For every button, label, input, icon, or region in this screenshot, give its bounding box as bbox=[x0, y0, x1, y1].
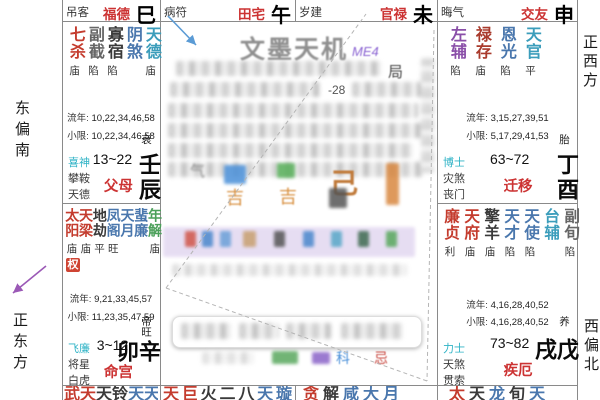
star-name: 阴煞 bbox=[123, 26, 140, 60]
star-list: 太阳 庙 天梁 庙 地劫 平 凤阁 旺 天月 蜚廉 bbox=[65, 208, 162, 253]
star-list: 七杀 庙 副截 陷 寡宿 陷 阴煞 天德 庙 bbox=[65, 26, 160, 75]
palace-travel[interactable]: 左辅 陷 禄存 庙 恩光 陷 天官 平 流年: 3,15,27,39,51 小限… bbox=[437, 22, 578, 204]
star-column: 副截 陷 bbox=[84, 26, 103, 75]
hua-ke-mark: 科 bbox=[336, 348, 350, 368]
star-char: 太 bbox=[449, 386, 465, 400]
palace-header-cell[interactable]: 岁建 官禄 未 bbox=[295, 0, 437, 21]
star-brightness: 庙 bbox=[80, 241, 91, 253]
star-brightness: 庙 bbox=[145, 63, 156, 75]
year-god-label: 晦气 bbox=[441, 4, 464, 20]
star-name: 天梁 bbox=[78, 208, 93, 238]
xiaoxian-label: 小限: bbox=[466, 317, 488, 328]
toolbar-button-blurred[interactable] bbox=[239, 323, 279, 339]
liunian-years: 3,15,27,39,51 bbox=[491, 113, 549, 124]
blurred-text-row bbox=[168, 123, 423, 138]
xiaoxian-years: 5,17,29,41,53 bbox=[491, 131, 549, 142]
star-char: 天 bbox=[529, 386, 545, 400]
palace-hai-stars-clipped[interactable]: 太天龙旬天 bbox=[449, 386, 557, 400]
blurred-text-row bbox=[168, 143, 413, 158]
star-char: 巨 bbox=[182, 386, 198, 400]
star-column: 擎羊 庙 bbox=[480, 208, 500, 256]
liunian-label: 流年: bbox=[466, 113, 488, 124]
liunian-years: 10,22,34,46,58 bbox=[91, 113, 154, 124]
compass-due-east: 正东方 bbox=[12, 312, 27, 375]
hua-quan-badge: 权 bbox=[66, 258, 80, 272]
branch-pillar: 壬辰 bbox=[137, 153, 159, 203]
gods-list: 博士灾煞丧门 bbox=[443, 155, 465, 203]
value-fragment: -28 bbox=[328, 83, 345, 97]
star-name: 副截 bbox=[85, 26, 102, 60]
star-column: 阴煞 bbox=[122, 26, 141, 75]
star-brightness: 利 bbox=[445, 244, 456, 256]
palace-name: 交友 bbox=[521, 3, 548, 23]
mini-red-block bbox=[185, 231, 196, 247]
xiaoxian-row: 小限: 5,17,29,41,53 bbox=[437, 128, 578, 142]
life-stage: 养 bbox=[559, 316, 570, 327]
branch-pillar: 戊戌 bbox=[533, 338, 577, 385]
blurred-text-row bbox=[168, 103, 418, 118]
quan-purple-block bbox=[312, 352, 330, 364]
star-char: 天 bbox=[128, 386, 144, 400]
star-char: 二 bbox=[219, 386, 235, 400]
auspicious-mark: 吉 bbox=[226, 184, 244, 210]
star-char: 龙 bbox=[489, 386, 505, 400]
star-char: 璇 bbox=[276, 386, 292, 400]
star-name: 年解 bbox=[147, 208, 162, 238]
star-brightness: 旺 bbox=[108, 241, 119, 253]
star-name: 七杀 bbox=[66, 26, 83, 60]
hua-ji-mark: 忌 bbox=[374, 348, 388, 368]
palace-yin-stars-clipped[interactable]: 武天天铃天天龙 bbox=[64, 386, 158, 400]
god-name: 攀鞍 bbox=[68, 171, 90, 187]
life-stage: 帝旺 bbox=[141, 316, 152, 337]
star-brightness: 陷 bbox=[88, 63, 99, 75]
blurred-text-row bbox=[168, 162, 423, 177]
palace-life[interactable]: 太阳 庙 天梁 庙 地劫 平 凤阁 旺 天月 蜚廉 bbox=[62, 204, 160, 385]
star-column: 左辅 陷 bbox=[443, 26, 468, 75]
star-column: 禄存 庙 bbox=[468, 26, 493, 75]
star-char: 旬 bbox=[509, 386, 525, 400]
star-char: 天 bbox=[96, 386, 112, 400]
mini-dark-block bbox=[274, 231, 285, 247]
star-column: 台辅 bbox=[540, 208, 560, 256]
star-name: 台辅 bbox=[542, 208, 558, 241]
toolbar-button-blurred[interactable] bbox=[286, 323, 331, 339]
star-column: 太阳 庙 bbox=[65, 208, 79, 253]
highlight-band bbox=[163, 227, 415, 257]
star-brightness: 平 bbox=[525, 63, 536, 75]
ziwei-chart: 东偏南 正东方 正西方 西偏北 吊客 福德 巳 病符 田宅 午 岁建 官禄 未 … bbox=[0, 0, 600, 400]
branch-pillar: 丁酉 bbox=[555, 153, 577, 203]
star-name: 天使 bbox=[522, 208, 538, 241]
palace-parents[interactable]: 七杀 庙 副截 陷 寡宿 陷 阴煞 天德 庙 流年: 10,22,34,46,5… bbox=[62, 22, 160, 204]
star-brightness: 陷 bbox=[107, 63, 118, 75]
star-name: 蜚廉 bbox=[134, 208, 149, 238]
star-brightness: 平 bbox=[94, 241, 105, 253]
mini-blue-block bbox=[202, 231, 213, 247]
top-palace-strip: 吊客 福德 巳 病符 田宅 午 岁建 官禄 未 晦气 交友 申 bbox=[62, 0, 578, 21]
star-char: 天 bbox=[80, 386, 96, 400]
palace-header-cell[interactable]: 病符 田宅 午 bbox=[160, 0, 295, 21]
star-char: 解 bbox=[323, 386, 339, 400]
star-column: 天梁 庙 bbox=[79, 208, 93, 253]
star-column: 天府 庙 bbox=[460, 208, 480, 256]
palace-name: 福德 bbox=[103, 3, 130, 23]
star-name: 天官 bbox=[522, 26, 539, 60]
palace-header-cell[interactable]: 吊客 福德 巳 bbox=[62, 0, 160, 21]
palace-name: 田宅 bbox=[238, 3, 265, 23]
blurred-text-row bbox=[172, 264, 407, 276]
earthly-branch: 未 bbox=[413, 0, 433, 28]
star-char: 铃 bbox=[112, 386, 128, 400]
star-name: 凤阁 bbox=[106, 208, 121, 238]
year-god-label: 吊客 bbox=[66, 4, 89, 20]
star-column: 蜚廉 bbox=[134, 208, 148, 253]
palace-name: 官禄 bbox=[380, 3, 407, 23]
mini-green-block bbox=[386, 231, 397, 247]
star-name: 天德 bbox=[142, 26, 159, 60]
mini-blue-block bbox=[303, 231, 314, 247]
purple-arrow bbox=[13, 266, 46, 293]
year-god-label: 病符 bbox=[164, 4, 187, 20]
liunian-row: 流年: 4,16,28,40,52 bbox=[437, 297, 578, 311]
star-column: 天使 陷 bbox=[520, 208, 540, 256]
mini-teal-block bbox=[331, 231, 342, 247]
star-char: 武 bbox=[64, 386, 80, 400]
liunian-label: 流年: bbox=[67, 113, 89, 124]
star-column: 天官 平 bbox=[518, 26, 543, 75]
star-column: 廉贞 利 bbox=[440, 208, 460, 256]
qi-fragment: 气 bbox=[190, 160, 205, 181]
star-name: 廉贞 bbox=[442, 208, 458, 241]
compass-due-west: 正西方 bbox=[582, 34, 597, 91]
bottom-toolbar[interactable] bbox=[172, 316, 422, 348]
age-range: 13~22 bbox=[86, 151, 140, 167]
god-name: 丧门 bbox=[443, 187, 465, 203]
star-column: 天才 陷 bbox=[500, 208, 520, 256]
star-brightness: 陷 bbox=[500, 63, 511, 75]
lu-green-block bbox=[272, 351, 298, 364]
god-name: 天德 bbox=[68, 187, 90, 203]
star-brightness: 陷 bbox=[525, 244, 536, 256]
star-column: 年解 庙 bbox=[148, 208, 162, 253]
star-brightness: 庙 bbox=[149, 241, 160, 253]
green-mark-block bbox=[277, 163, 295, 178]
star-brightness: 陷 bbox=[505, 244, 516, 256]
liunian-row: 流年: 10,22,34,46,58 bbox=[62, 110, 160, 124]
star-name: 地劫 bbox=[92, 208, 107, 238]
xiaoxian-label: 小限: bbox=[466, 131, 488, 142]
toolbar-button-blurred[interactable] bbox=[181, 323, 231, 339]
star-column: 恩光 陷 bbox=[493, 26, 518, 75]
star-name: 天才 bbox=[502, 208, 518, 241]
star-column: 七杀 庙 bbox=[65, 26, 84, 75]
liunian-row: 流年: 9,21,33,45,57 bbox=[62, 291, 160, 305]
god-name: 博士 bbox=[443, 155, 465, 171]
star-brightness: 陷 bbox=[450, 63, 461, 75]
year-god-label: 岁建 bbox=[299, 4, 322, 20]
xiaoxian-label: 小限: bbox=[67, 131, 89, 142]
star-name: 副旬 bbox=[562, 208, 578, 241]
star-name: 禄存 bbox=[472, 26, 489, 60]
star-char: 天 bbox=[144, 386, 158, 400]
star-brightness: 庙 bbox=[67, 241, 78, 253]
star-char: 咸 bbox=[343, 386, 359, 400]
star-brightness: 庙 bbox=[69, 63, 80, 75]
dark-mark-block bbox=[329, 188, 347, 208]
xiaoxian-years: 4,16,28,40,52 bbox=[491, 317, 549, 328]
liunian-years: 9,21,33,45,57 bbox=[94, 294, 152, 305]
star-brightness: 陷 bbox=[565, 244, 576, 256]
orange-mark-block bbox=[386, 163, 399, 205]
star-column: 副旬 陷 bbox=[560, 208, 580, 256]
compass-east-south: 东偏南 bbox=[14, 100, 29, 163]
star-column: 凤阁 旺 bbox=[106, 208, 120, 253]
earthly-branch: 午 bbox=[271, 0, 291, 28]
blurred-text-row bbox=[176, 61, 381, 76]
star-column: 寡宿 陷 bbox=[103, 26, 122, 75]
star-column: 天月 bbox=[120, 208, 134, 253]
liunian-row: 流年: 3,15,27,39,51 bbox=[437, 110, 578, 124]
palace-header-cell[interactable]: 晦气 交友 申 bbox=[437, 0, 578, 21]
app-watermark-code: ME4 bbox=[352, 44, 379, 59]
palace-zi-stars-clipped[interactable]: 贪解咸大月 bbox=[303, 386, 415, 400]
blurred-caption bbox=[202, 352, 254, 364]
star-name: 恩光 bbox=[497, 26, 514, 60]
star-char: 天 bbox=[469, 386, 485, 400]
star-list: 廉贞 利 天府 庙 擎羊 庙 天才 陷 天使 陷 台辅 bbox=[440, 208, 580, 256]
xiaoxian-row: 小限: 4,16,28,40,52 bbox=[437, 314, 578, 328]
god-name: 天煞 bbox=[443, 357, 465, 373]
star-name: 天月 bbox=[120, 208, 135, 238]
blurred-text-row bbox=[170, 82, 320, 97]
ju-fragment: 局 bbox=[388, 61, 403, 82]
mini-tan-block bbox=[243, 231, 256, 247]
toolbar-button-blurred[interactable] bbox=[341, 323, 403, 339]
god-name: 力士 bbox=[443, 341, 465, 357]
life-stage: 胎 bbox=[559, 134, 570, 145]
star-char: 贪 bbox=[303, 386, 319, 400]
star-char: 天 bbox=[163, 386, 179, 400]
palace-name: 迁移 bbox=[479, 175, 557, 196]
star-list: 左辅 陷 禄存 庙 恩光 陷 天官 平 bbox=[443, 26, 543, 75]
star-name: 寡宿 bbox=[104, 26, 121, 60]
auspicious-mark: 吉 bbox=[279, 183, 297, 209]
star-char: 八 bbox=[238, 386, 254, 400]
palace-health[interactable]: 廉贞 利 天府 庙 擎羊 庙 天才 陷 天使 陷 台辅 bbox=[437, 204, 578, 385]
liunian-label: 流年: bbox=[466, 300, 488, 311]
star-char: 月 bbox=[383, 386, 399, 400]
star-name: 左辅 bbox=[447, 26, 464, 60]
star-brightness: 庙 bbox=[475, 63, 486, 75]
star-name: 天府 bbox=[462, 208, 478, 241]
age-range: 63~72 bbox=[471, 151, 549, 167]
mini-blue-block bbox=[220, 231, 231, 247]
star-brightness: 庙 bbox=[465, 244, 476, 256]
grid-line bbox=[295, 385, 296, 400]
star-column: 天德 庙 bbox=[141, 26, 160, 75]
life-stage: 衰 bbox=[141, 134, 152, 145]
blue-mark-block bbox=[224, 165, 246, 184]
star-name: 擎羊 bbox=[482, 208, 498, 241]
star-char: 大 bbox=[363, 386, 379, 400]
god-name: 将星 bbox=[68, 357, 90, 373]
gods-list: 力士天煞贯索 bbox=[443, 341, 465, 389]
blurred-side-column bbox=[421, 58, 434, 173]
star-brightness: 庙 bbox=[485, 244, 496, 256]
star-char: 火 bbox=[201, 386, 217, 400]
star-char: 天 bbox=[257, 386, 273, 400]
xiaoxian-label: 小限: bbox=[68, 312, 90, 323]
compass-west-north: 西偏北 bbox=[583, 318, 598, 375]
branch-pillar: 辛卯 bbox=[115, 340, 159, 385]
liunian-label: 流年: bbox=[70, 294, 92, 305]
palace-chou-stars-clipped[interactable]: 天巨火二八天璇 bbox=[163, 386, 292, 400]
star-column: 地劫 平 bbox=[93, 208, 107, 253]
mini-dark-green-block bbox=[358, 231, 369, 247]
liunian-years: 4,16,28,40,52 bbox=[491, 300, 549, 311]
blurred-text-row bbox=[352, 82, 422, 97]
god-name: 灾煞 bbox=[443, 171, 465, 187]
star-name: 太阳 bbox=[65, 208, 80, 238]
